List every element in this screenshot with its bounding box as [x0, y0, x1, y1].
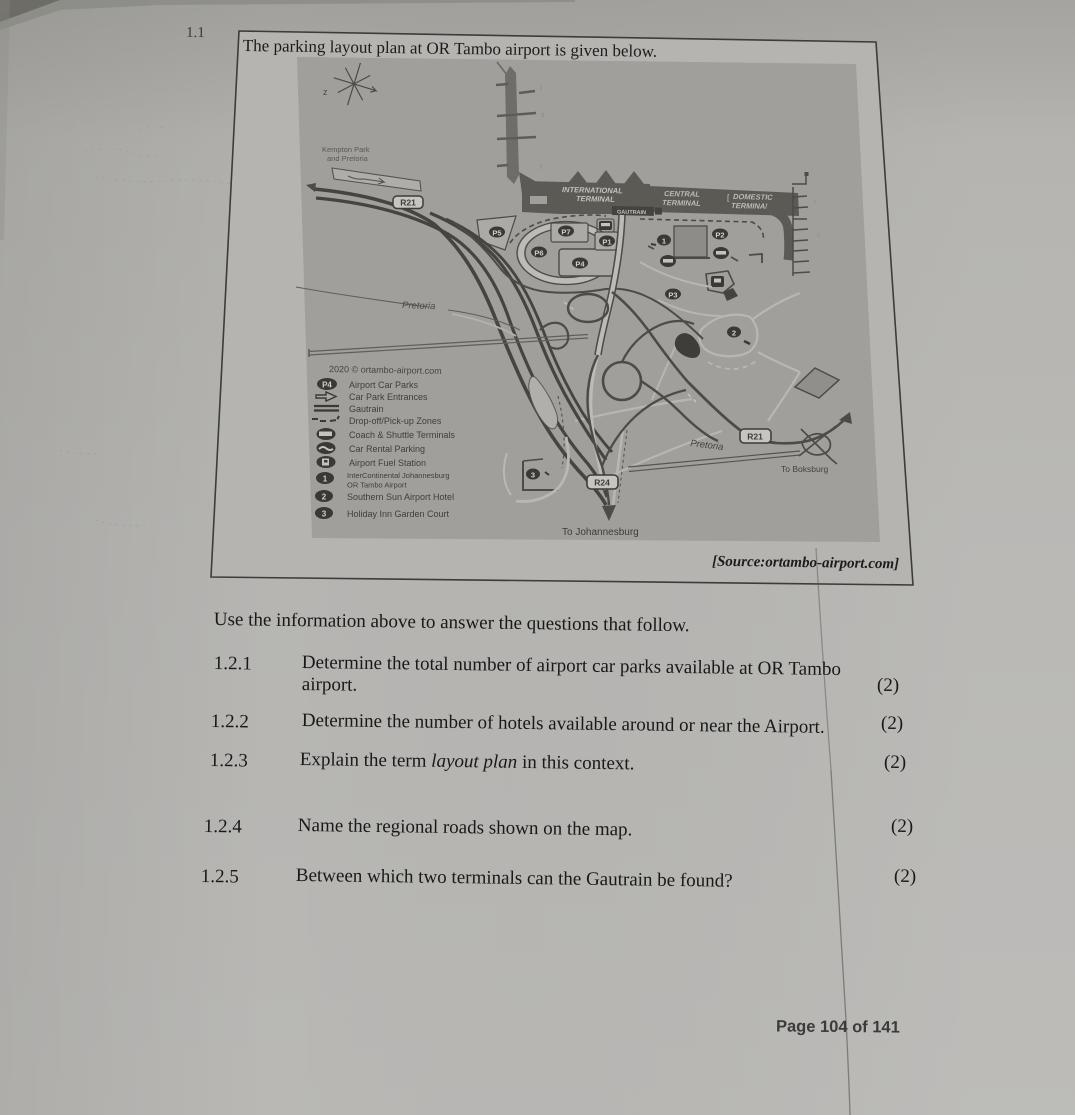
svg-text:1: 1 — [662, 237, 666, 246]
svg-text:TERMINAL: TERMINAL — [662, 198, 701, 208]
svg-text:2020 © ortambo-airport.com: 2020 © ortambo-airport.com — [329, 364, 442, 376]
svg-text:P4: P4 — [322, 381, 332, 390]
svg-text:t: t — [540, 85, 542, 92]
svg-text:R21: R21 — [400, 198, 416, 208]
svg-text:TERMINAL: TERMINAL — [731, 201, 770, 211]
svg-text:s: s — [541, 112, 545, 119]
svg-text:and Pretoria: and Pretoria — [327, 154, 369, 163]
svg-text:t: t — [540, 164, 542, 171]
svg-text:Car Park Entrances: Car Park Entrances — [349, 392, 428, 402]
svg-text:3: 3 — [531, 471, 535, 480]
svg-text:P7: P7 — [561, 228, 570, 237]
svg-text:P1: P1 — [602, 238, 611, 247]
svg-text:2: 2 — [732, 329, 736, 338]
svg-text:OR Tambo Airport: OR Tambo Airport — [347, 481, 407, 490]
svg-text:Airport Fuel Station: Airport Fuel Station — [349, 458, 426, 468]
svg-text:P3: P3 — [668, 291, 677, 300]
svg-text:Pretoria: Pretoria — [402, 300, 436, 312]
svg-text:P6: P6 — [534, 249, 543, 258]
svg-text:1: 1 — [323, 475, 328, 484]
svg-text:Coach & Shuttle Terminals: Coach & Shuttle Terminals — [349, 430, 455, 440]
svg-text:InterContinental Johannesburg: InterContinental Johannesburg — [347, 471, 450, 480]
svg-text:2: 2 — [322, 493, 327, 502]
svg-text:Airport Car Parks: Airport Car Parks — [349, 380, 419, 390]
svg-text:To Boksburg: To Boksburg — [781, 464, 829, 474]
svg-text:Drop-off/Pick-up Zones: Drop-off/Pick-up Zones — [349, 416, 442, 426]
svg-text:Gautrain: Gautrain — [349, 404, 384, 414]
svg-text:3: 3 — [322, 510, 327, 519]
svg-text:z: z — [323, 87, 328, 97]
svg-text:Kempton Park: Kempton Park — [322, 145, 370, 154]
svg-text:P5: P5 — [492, 229, 501, 238]
svg-text:Car Rental Parking: Car Rental Parking — [349, 444, 425, 454]
svg-text:c: c — [817, 233, 820, 239]
svg-text:R24: R24 — [594, 478, 610, 488]
svg-text:TERMINAL: TERMINAL — [576, 194, 615, 204]
svg-text:R21: R21 — [747, 432, 763, 442]
svg-text:P2: P2 — [715, 231, 724, 240]
svg-text:Holiday Inn Garden Court: Holiday Inn Garden Court — [347, 509, 450, 519]
svg-text:P4: P4 — [575, 260, 585, 269]
svg-text:To Johannesburg: To Johannesburg — [562, 527, 639, 538]
svg-text:Southern Sun Airport Hotel: Southern Sun Airport Hotel — [347, 492, 454, 502]
